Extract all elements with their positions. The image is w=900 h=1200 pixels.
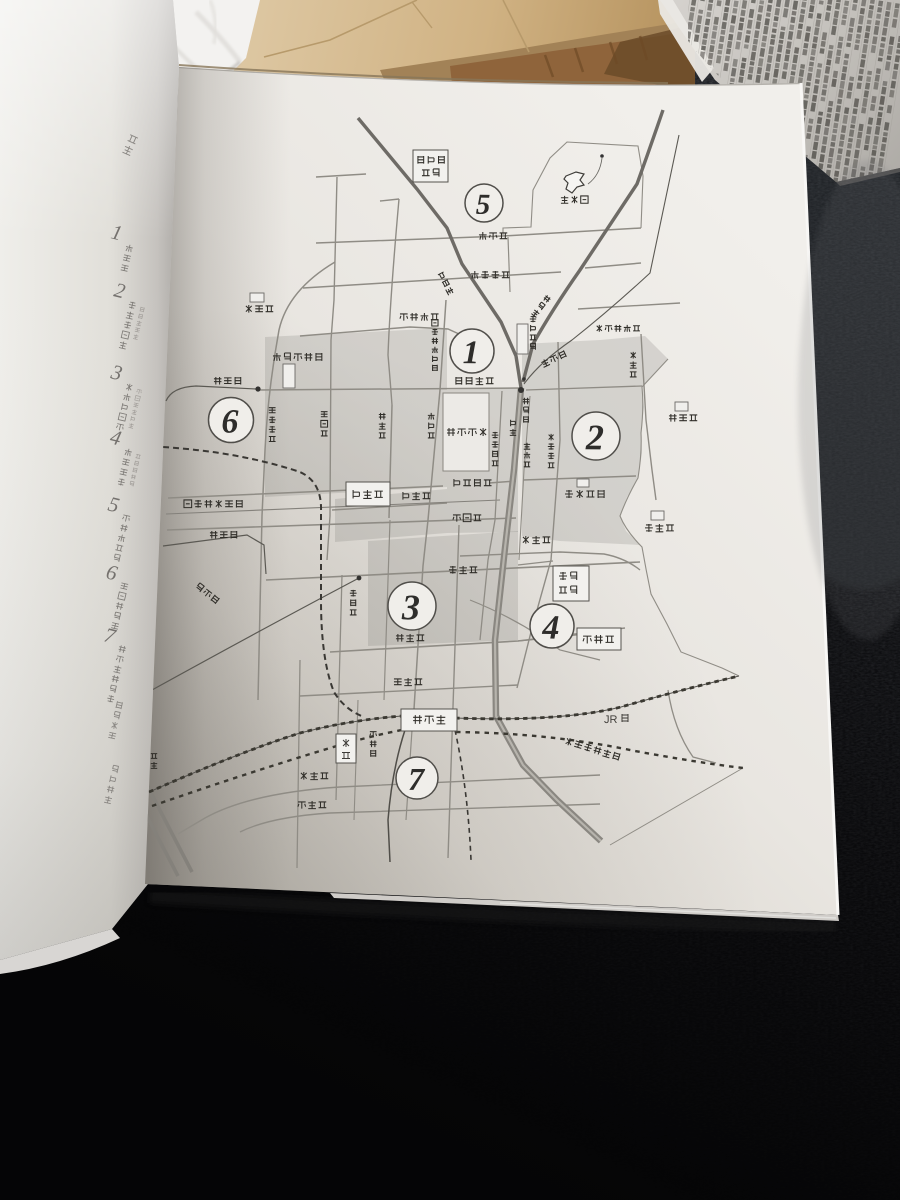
- svg-text:4: 4: [541, 610, 559, 647]
- svg-text:JR: JR: [604, 714, 618, 726]
- svg-text:1: 1: [463, 335, 480, 371]
- svg-text:5: 5: [476, 189, 491, 221]
- svg-text:7: 7: [408, 761, 426, 797]
- svg-text:2: 2: [585, 417, 604, 457]
- svg-text:3: 3: [401, 587, 420, 627]
- svg-text:6: 6: [221, 404, 238, 441]
